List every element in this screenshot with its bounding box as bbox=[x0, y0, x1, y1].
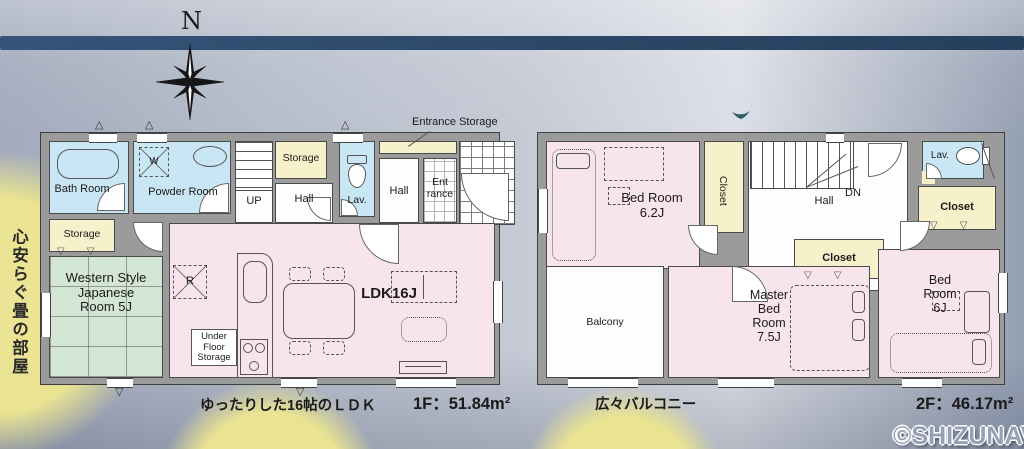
bathtub bbox=[57, 149, 119, 179]
pillow bbox=[852, 319, 865, 341]
hall-2f-label: Hall bbox=[802, 195, 846, 207]
floor2-area: 2F：46.17m² bbox=[916, 395, 1024, 413]
toilet-2f bbox=[956, 147, 990, 170]
highlight-circle-balcony bbox=[520, 386, 726, 449]
washer-label: W bbox=[139, 156, 169, 167]
dining-chair bbox=[323, 267, 345, 281]
hall-mid-label: Hall bbox=[277, 193, 331, 205]
desk bbox=[604, 147, 664, 181]
dining-chair bbox=[289, 341, 311, 355]
coffee-table bbox=[401, 317, 447, 342]
room-entrance-storage bbox=[379, 141, 457, 154]
bedroom2-label: Bed Room 6J bbox=[916, 273, 964, 315]
fridge-label: R bbox=[173, 275, 207, 287]
powder-sink bbox=[193, 146, 227, 167]
entrance-label: Ent rance bbox=[423, 177, 457, 201]
window bbox=[998, 273, 1008, 313]
window bbox=[396, 378, 456, 388]
door-arc-japanese bbox=[133, 222, 163, 252]
window-marker-icon: △ bbox=[145, 120, 153, 131]
closet1-label: Closet bbox=[716, 161, 728, 221]
ldk-note: ゆったりした16帖のＬＤＫ bbox=[200, 398, 380, 414]
japanese-room-label: Western Style Japanese Room 5J bbox=[59, 271, 153, 315]
balcony-label: Balcony bbox=[566, 317, 644, 329]
dining-chair bbox=[323, 341, 345, 355]
compass-north-label: N bbox=[181, 8, 202, 35]
window bbox=[718, 378, 774, 388]
window bbox=[89, 133, 117, 143]
closet-fold-marks: ▽▽ bbox=[930, 221, 989, 231]
dining-chair bbox=[289, 267, 311, 281]
tv-board-line bbox=[405, 366, 441, 367]
bird-icon bbox=[731, 110, 751, 122]
navy-divider-band bbox=[0, 36, 1024, 50]
closet2-label: Closet bbox=[922, 201, 992, 213]
window-marker-icon: △ bbox=[95, 120, 103, 131]
ldk-label: LDK16J bbox=[353, 286, 425, 303]
dining-table bbox=[283, 283, 355, 339]
floor1-area: 1F：51.84m² bbox=[413, 395, 523, 413]
window bbox=[493, 281, 503, 323]
window bbox=[902, 378, 942, 388]
hall-entrance-label: Hall bbox=[381, 185, 417, 197]
floor1-plan: W R △ △ △ ▽ ▽ ▽▽ bbox=[40, 132, 500, 385]
kitchen-stove bbox=[240, 339, 268, 375]
window-marker-icon: △ bbox=[341, 120, 349, 131]
closet3-label: Closet bbox=[800, 252, 878, 264]
balcony-note: 広々バルコニー bbox=[595, 397, 715, 413]
window bbox=[538, 189, 548, 233]
tv-board bbox=[399, 361, 447, 374]
door-arc-bedroom2 bbox=[900, 221, 930, 251]
entrance-storage-callout: Entrance Storage bbox=[412, 116, 512, 128]
lav-2f-label: Lav. bbox=[924, 150, 956, 161]
window bbox=[568, 378, 638, 388]
pillow bbox=[972, 339, 986, 365]
stairs-up bbox=[235, 141, 273, 191]
window bbox=[333, 133, 363, 143]
copyright-watermark: ©SHIZUNAVI bbox=[893, 422, 1024, 449]
tatami-note: 心安らぐ畳の部屋 bbox=[9, 202, 27, 402]
stairs-down bbox=[750, 141, 854, 189]
storage-left-label: Storage bbox=[51, 229, 113, 241]
pillow bbox=[556, 153, 590, 169]
window-marker-icon: ▽ bbox=[296, 387, 304, 398]
floorplan-canvas: N bbox=[0, 0, 1024, 449]
toilet-1f bbox=[347, 155, 367, 188]
closet-fold-marks: ▽▽ bbox=[57, 247, 116, 257]
under-floor-storage-label: Under Floor Storage bbox=[192, 332, 236, 364]
bedroom1-label: Bed Room 6.2J bbox=[616, 191, 688, 220]
master-bedroom-label: Master Bed Room 7.5J bbox=[740, 288, 798, 344]
window bbox=[826, 133, 844, 143]
window bbox=[137, 133, 167, 143]
storage-top-label: Storage bbox=[275, 153, 327, 165]
desk bbox=[964, 291, 990, 333]
bath-label: Bath Room bbox=[51, 183, 113, 195]
lav-1f-label: Lav. bbox=[340, 195, 374, 207]
compass-rose-icon bbox=[156, 44, 224, 120]
pillow bbox=[852, 291, 865, 313]
kitchen-sink bbox=[243, 261, 267, 303]
closet-fold-marks: ▽▽ bbox=[804, 271, 863, 281]
window bbox=[41, 293, 51, 337]
window-marker-icon: ▽ bbox=[115, 387, 123, 398]
floor2-plan: ▽▽ ▽▽ Bed Room 6.2J Closet DN Hall Lav. … bbox=[537, 132, 1005, 385]
powder-label: Powder Room bbox=[143, 186, 223, 198]
stairs-up-label: UP bbox=[236, 195, 272, 207]
